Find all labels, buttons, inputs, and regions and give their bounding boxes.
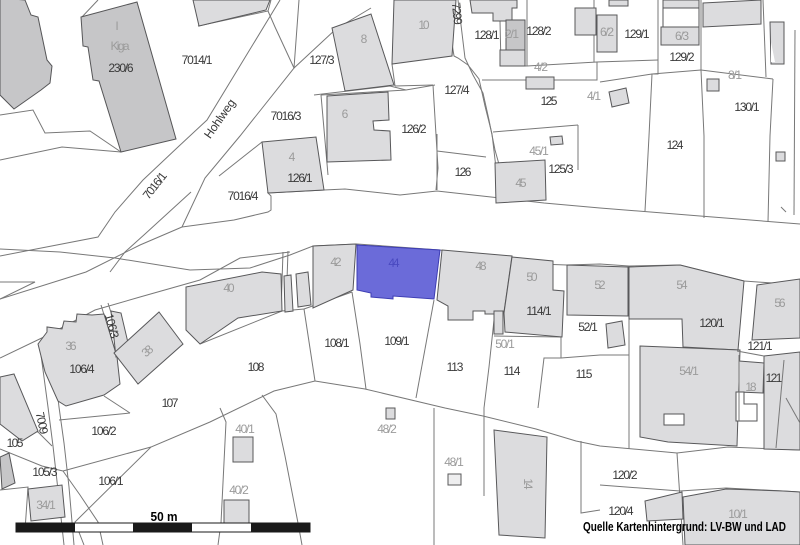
svg-text:109/1: 109/1 bbox=[384, 334, 410, 348]
svg-text:45/1: 45/1 bbox=[529, 144, 549, 158]
svg-text:105/3: 105/3 bbox=[32, 465, 58, 479]
svg-text:10/1: 10/1 bbox=[728, 507, 748, 521]
svg-text:7016/4: 7016/4 bbox=[228, 189, 259, 203]
svg-text:52: 52 bbox=[594, 278, 606, 292]
svg-text:50 m: 50 m bbox=[151, 509, 178, 524]
svg-text:52/1: 52/1 bbox=[578, 320, 598, 334]
svg-text:6/3: 6/3 bbox=[675, 29, 689, 43]
svg-text:126/2: 126/2 bbox=[401, 122, 427, 136]
svg-text:42: 42 bbox=[330, 255, 342, 269]
svg-text:4/1: 4/1 bbox=[587, 89, 601, 103]
svg-text:50: 50 bbox=[526, 270, 538, 284]
svg-text:120/4: 120/4 bbox=[608, 504, 634, 518]
svg-text:120/2: 120/2 bbox=[612, 468, 638, 482]
svg-text:4/2: 4/2 bbox=[534, 60, 548, 74]
svg-text:120/1: 120/1 bbox=[699, 316, 725, 330]
svg-text:18: 18 bbox=[745, 380, 757, 394]
svg-text:7014/1: 7014/1 bbox=[182, 53, 213, 67]
svg-text:50/1: 50/1 bbox=[495, 337, 515, 351]
svg-text:40/1: 40/1 bbox=[235, 422, 255, 436]
svg-text:115: 115 bbox=[576, 367, 593, 381]
svg-text:6/2: 6/2 bbox=[600, 25, 614, 39]
svg-text:48/1: 48/1 bbox=[444, 455, 464, 469]
svg-text:34/1: 34/1 bbox=[36, 498, 56, 512]
svg-text:44: 44 bbox=[388, 256, 400, 270]
svg-text:56: 56 bbox=[774, 296, 786, 310]
svg-text:40: 40 bbox=[223, 281, 235, 295]
svg-text:36: 36 bbox=[65, 339, 77, 353]
svg-text:I: I bbox=[115, 19, 118, 33]
svg-text:126/1: 126/1 bbox=[287, 171, 313, 185]
svg-text:121: 121 bbox=[766, 371, 783, 385]
svg-text:124: 124 bbox=[667, 138, 684, 152]
svg-text:2/1: 2/1 bbox=[505, 27, 519, 41]
svg-text:125/3: 125/3 bbox=[548, 162, 574, 176]
svg-text:54/1: 54/1 bbox=[679, 364, 699, 378]
svg-text:Quelle Kartenhintergrund: LV-B: Quelle Kartenhintergrund: LV-BW und LAD bbox=[583, 520, 786, 534]
svg-text:121/1: 121/1 bbox=[747, 339, 773, 353]
svg-text:107: 107 bbox=[162, 396, 179, 410]
svg-text:108: 108 bbox=[248, 360, 265, 374]
svg-text:14: 14 bbox=[521, 478, 535, 490]
svg-text:4: 4 bbox=[289, 150, 296, 164]
svg-text:128/2: 128/2 bbox=[526, 24, 552, 38]
svg-text:105: 105 bbox=[7, 436, 24, 450]
svg-text:40/2: 40/2 bbox=[229, 483, 249, 497]
svg-text:48: 48 bbox=[475, 259, 487, 273]
svg-text:127/4: 127/4 bbox=[444, 83, 470, 97]
svg-text:114: 114 bbox=[504, 364, 521, 378]
svg-text:128/1: 128/1 bbox=[474, 28, 500, 42]
svg-text:6: 6 bbox=[342, 107, 349, 121]
svg-text:7016/3: 7016/3 bbox=[271, 109, 302, 123]
svg-text:114/1: 114/1 bbox=[526, 304, 552, 318]
svg-text:106/4: 106/4 bbox=[69, 362, 95, 376]
svg-text:54: 54 bbox=[676, 278, 688, 292]
svg-text:129/2: 129/2 bbox=[669, 50, 695, 64]
svg-text:108/1: 108/1 bbox=[324, 336, 350, 350]
svg-text:10: 10 bbox=[418, 18, 430, 32]
svg-text:130/1: 130/1 bbox=[734, 100, 760, 114]
svg-text:8: 8 bbox=[361, 32, 368, 46]
svg-text:7299: 7299 bbox=[449, 2, 465, 26]
svg-text:Kiga: Kiga bbox=[110, 39, 129, 53]
svg-text:230/6: 230/6 bbox=[108, 61, 134, 75]
svg-text:125: 125 bbox=[541, 94, 558, 108]
svg-text:106/1: 106/1 bbox=[98, 474, 124, 488]
svg-text:113: 113 bbox=[447, 360, 464, 374]
svg-text:129/1: 129/1 bbox=[624, 27, 650, 41]
svg-text:106/2: 106/2 bbox=[91, 424, 117, 438]
svg-text:126: 126 bbox=[455, 165, 472, 179]
svg-text:127/3: 127/3 bbox=[309, 53, 335, 67]
svg-text:45: 45 bbox=[515, 176, 527, 190]
svg-text:8/1: 8/1 bbox=[728, 68, 742, 82]
svg-text:48/2: 48/2 bbox=[377, 422, 397, 436]
